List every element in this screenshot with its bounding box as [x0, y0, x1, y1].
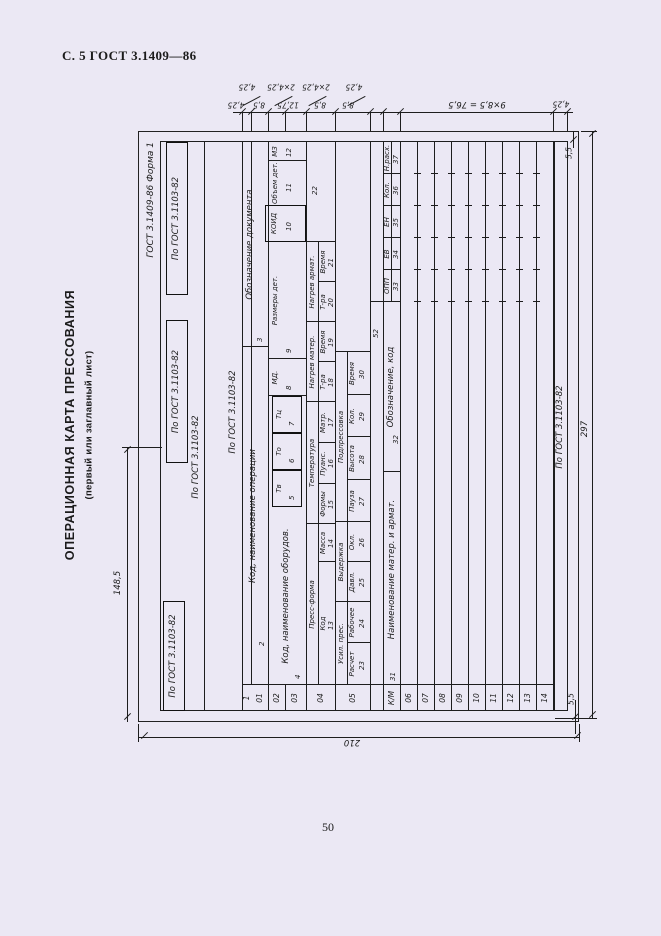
dim-footer: 4,25 — [553, 100, 570, 109]
extension-line — [553, 112, 554, 131]
extension-line — [268, 112, 269, 131]
dimension-line — [127, 447, 128, 722]
dim-margin-top: 5,5 — [565, 147, 574, 159]
extension-line — [285, 112, 286, 131]
dim-top-slant-3: 2×4,25 — [302, 83, 330, 92]
scanned-page: { "page": { "header": "С. 5 ГОСТ 3.1409—… — [0, 0, 661, 936]
dimension-annotations: 4,25 2×4,25 2×4,25 4,25 4,25 8,5 12,75 8… — [0, 0, 661, 936]
dim-top-slant-1: 4,25 — [239, 83, 256, 92]
dim-half-148: 148,5 — [113, 571, 123, 595]
dimension-line — [592, 131, 593, 718]
extension-line — [335, 112, 336, 131]
extension-line — [567, 112, 568, 131]
extension-line — [383, 112, 384, 131]
dim-width-297: 297 — [580, 421, 590, 437]
dim-top-slant-4: 4,25 — [346, 83, 363, 92]
dim-data-rows: 9×8,5 = 76,5 — [448, 99, 506, 109]
dim-top-slant-2: 2×4,25 — [267, 83, 295, 92]
extension-line — [370, 112, 371, 131]
dimension-line — [138, 724, 139, 742]
dimension-line — [555, 718, 597, 719]
extension-line — [306, 112, 307, 131]
extension-line — [251, 112, 252, 131]
dimension-line — [138, 737, 579, 738]
extension-line — [242, 112, 243, 131]
dim-height-210: 210 — [344, 737, 360, 747]
extension-line — [400, 112, 401, 131]
